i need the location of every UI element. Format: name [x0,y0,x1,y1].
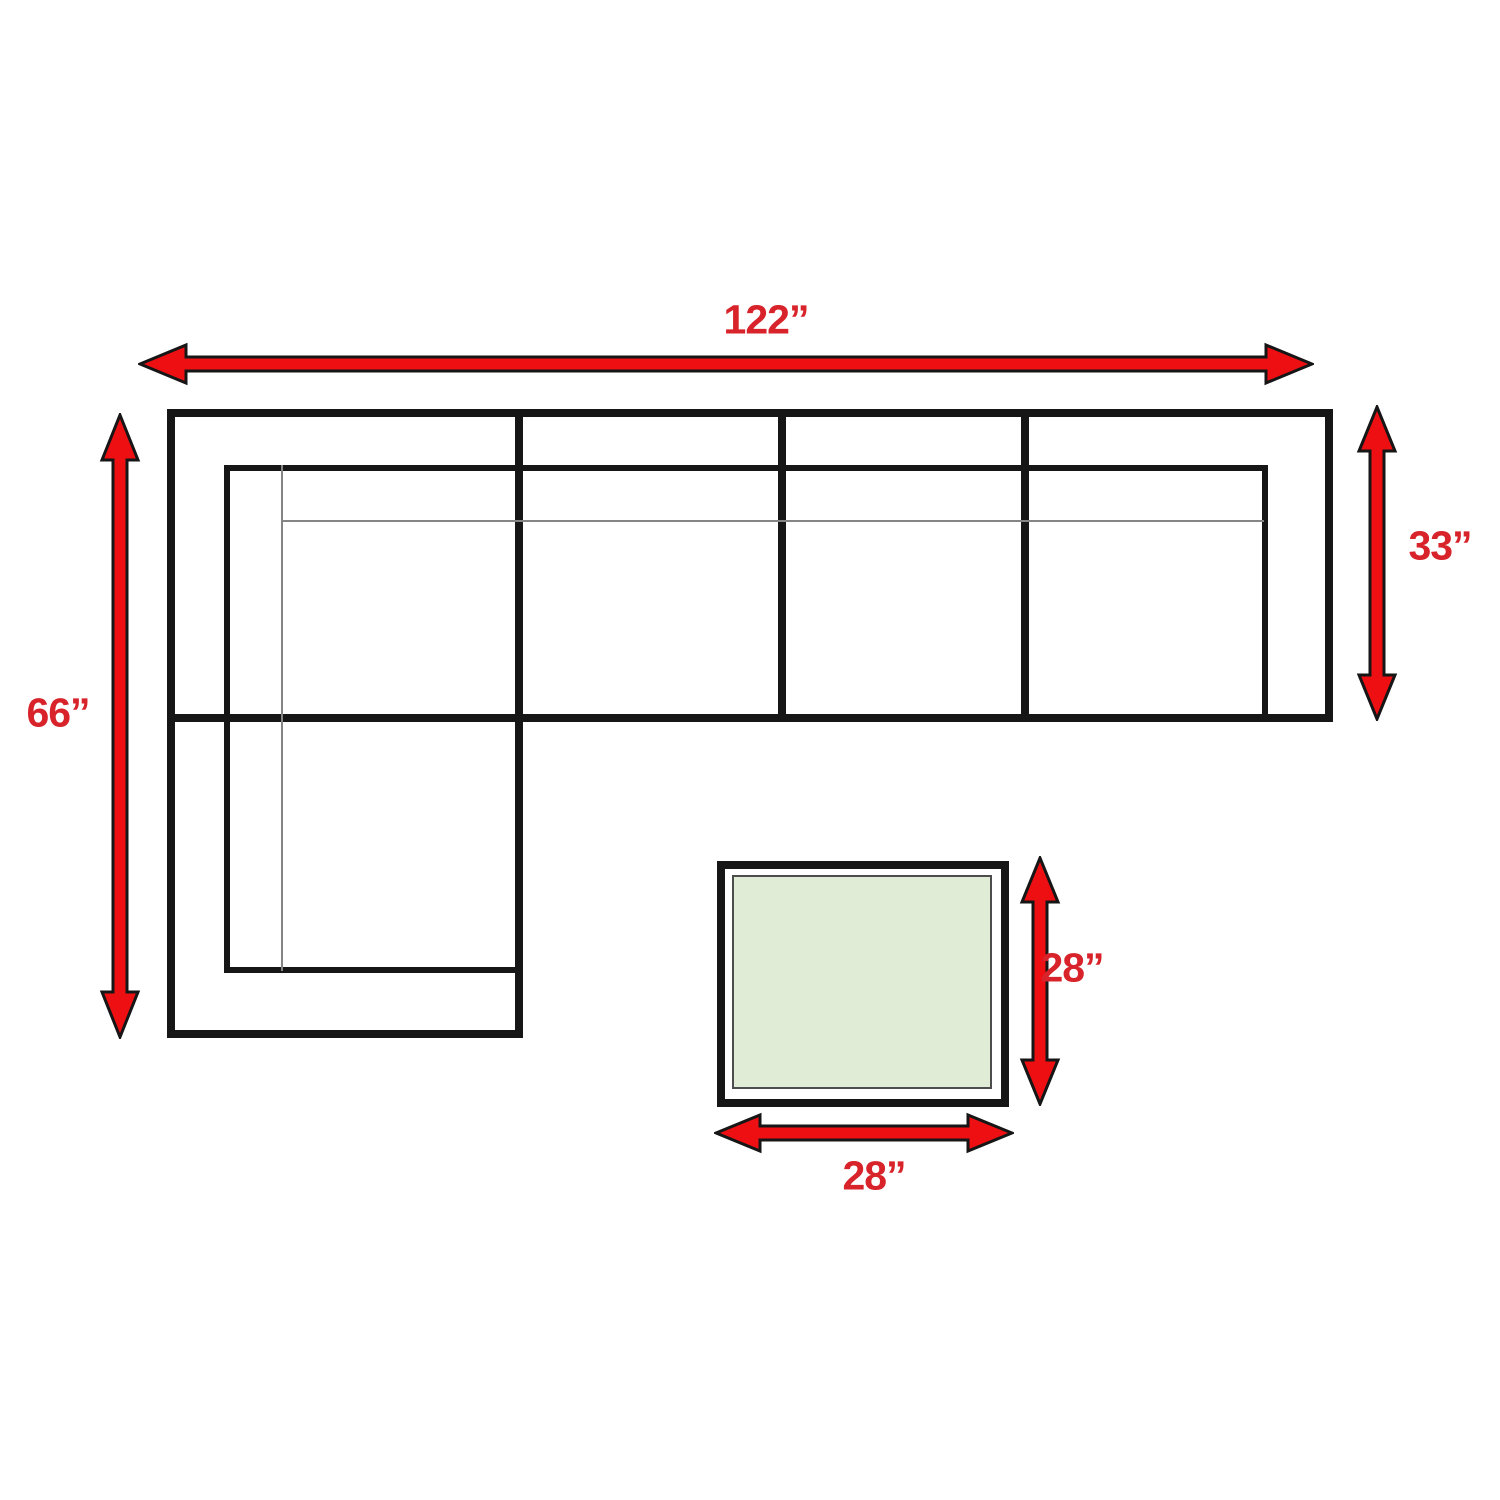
sofa-seat-inner-left-line [224,465,230,973]
chaise-depth-dimension-arrow [99,413,141,1039]
sofa-section-divider-3 [1021,409,1029,722]
chaise-depth-label: 66” [26,693,89,734]
chaise-seat-inner-bottom-line [224,967,523,973]
sofa-width-label: 122” [724,300,809,341]
ottoman-table-top-surface [732,875,992,1089]
cushion-thin-horizontal-line [281,520,1264,522]
ottoman-width-label: 28” [842,1156,905,1197]
sofa-chaise-outline [167,409,523,1038]
sofa-seat-inner-right-line [1262,465,1268,722]
ottoman-width-dimension-arrow [714,1112,1014,1154]
sofa-seat-inner-top-line [224,465,1268,471]
diagram-canvas: 122” 66” 33” 28” 28” [0,0,1500,1500]
sofa-depth-dimension-arrow [1356,405,1398,721]
sofa-width-dimension-arrow [138,342,1314,386]
sofa-depth-label: 33” [1408,526,1471,567]
cushion-thin-vertical-line [281,465,283,971]
sofa-section-divider-2 [778,409,786,722]
ottoman-depth-label: 28” [1040,948,1103,989]
